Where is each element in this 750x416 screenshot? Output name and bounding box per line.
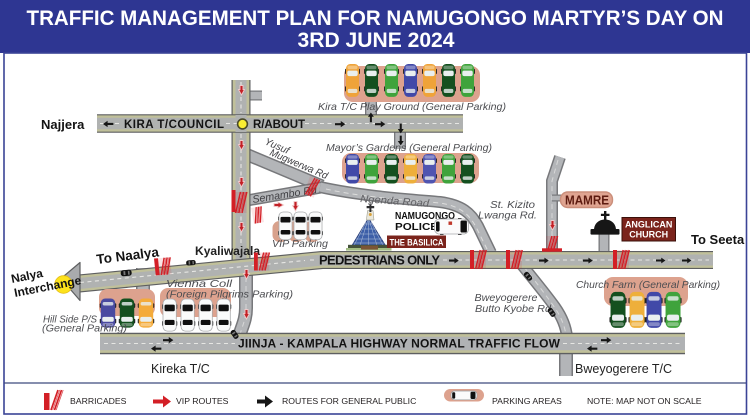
- svg-text:Kireka T/C: Kireka T/C: [151, 362, 210, 376]
- svg-text:POLICE: POLICE: [395, 222, 438, 233]
- svg-text:CHURCH: CHURCH: [629, 230, 668, 240]
- svg-text:ANGLICAN: ANGLICAN: [625, 220, 673, 230]
- svg-text:NOTE: MAP NOT ON SCALE: NOTE: MAP NOT ON SCALE: [587, 396, 702, 406]
- svg-text:Mayor’s Gardens (General Parki: Mayor’s Gardens (General Parking): [326, 143, 492, 154]
- svg-text:PEDESTRIANS ONLY: PEDESTRIANS ONLY: [319, 253, 440, 268]
- svg-text:Bweyogerere T/C: Bweyogerere T/C: [575, 362, 672, 376]
- svg-text:R/ABOUT: R/ABOUT: [253, 119, 305, 131]
- svg-text:Kyaliwajala: Kyaliwajala: [195, 244, 260, 258]
- svg-text:To Seeta: To Seeta: [691, 232, 745, 247]
- svg-text:Lwanga Rd.: Lwanga Rd.: [478, 210, 537, 222]
- svg-text:Kira T/C Play Ground (General: Kira T/C Play Ground (General Parking): [318, 102, 506, 113]
- svg-text:ROUTES FOR GENERAL PUBLIC: ROUTES FOR GENERAL PUBLIC: [282, 396, 416, 406]
- svg-text:PARKING AREAS: PARKING AREAS: [492, 396, 562, 406]
- svg-text:THE BASILICA: THE BASILICA: [390, 237, 444, 247]
- svg-text:(General Parking): (General Parking): [42, 323, 127, 335]
- svg-text:VIP ROUTES: VIP ROUTES: [176, 396, 229, 406]
- svg-text:MAMRE: MAMRE: [565, 193, 609, 208]
- svg-text:Najjera: Najjera: [41, 117, 85, 132]
- svg-text:Butto Kyobe Rd: Butto Kyobe Rd: [475, 303, 552, 315]
- svg-text:BARRICADES: BARRICADES: [70, 396, 127, 406]
- svg-text:JIINJA - KAMPALA HIGHWAY NORMA: JIINJA - KAMPALA HIGHWAY NORMAL TRAFFIC …: [238, 337, 561, 351]
- svg-text:KIRA T/COUNCIL: KIRA T/COUNCIL: [124, 119, 224, 131]
- svg-text:Church Farm (General Parking): Church Farm (General Parking): [576, 280, 720, 291]
- svg-text:VIP Parking: VIP Parking: [272, 238, 328, 250]
- svg-text:TRAFFIC MANAGEMENT PLAN FOR NA: TRAFFIC MANAGEMENT PLAN FOR NAMUGONGO MA…: [27, 6, 724, 30]
- svg-text:3RD JUNE 2024: 3RD JUNE 2024: [298, 28, 455, 52]
